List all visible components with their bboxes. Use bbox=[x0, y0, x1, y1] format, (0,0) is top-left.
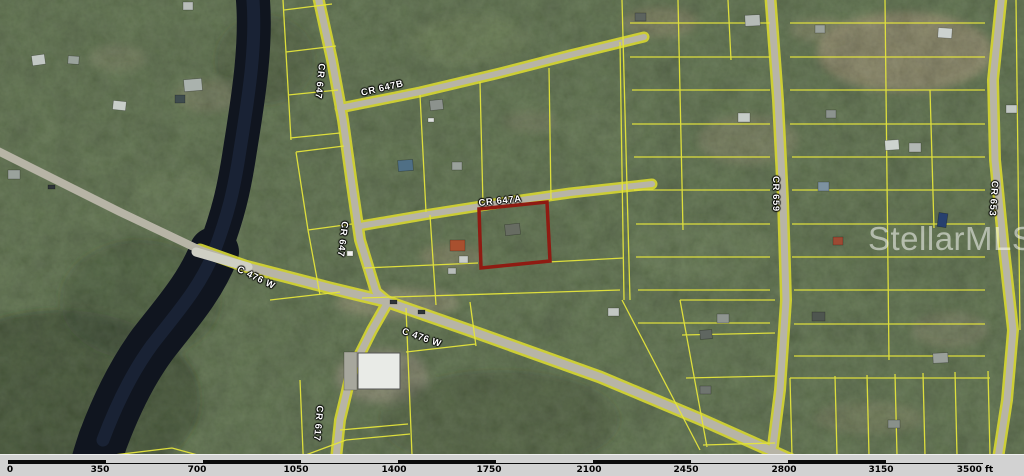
scale-tick-label: 350 bbox=[91, 465, 110, 475]
scale-bar: 0 350 700 1050 1400 1750 2100 2450 2800 … bbox=[0, 454, 1024, 476]
scale-tick-label: 1400 bbox=[381, 465, 406, 475]
scale-tick-label: 2450 bbox=[673, 465, 698, 475]
scale-ruler bbox=[8, 460, 983, 464]
scale-tick-label: 2100 bbox=[576, 465, 601, 475]
scale-tick-label: 2800 bbox=[771, 465, 796, 475]
scale-tick-label: 3500 ft bbox=[957, 465, 993, 475]
scale-tick-label: 1750 bbox=[476, 465, 501, 475]
aerial-parcel-map: CR 647 CR 647 CR 647B CR 647A CR 617 CR … bbox=[0, 0, 1024, 476]
scale-tick-label: 0 bbox=[7, 465, 13, 475]
scale-tick-label: 1050 bbox=[283, 465, 308, 475]
road-label-cr659: CR 659 bbox=[770, 176, 781, 212]
scale-tick-label: 700 bbox=[188, 465, 207, 475]
scale-tick-label: 3150 bbox=[868, 465, 893, 475]
stellar-mls-watermark: StellarMLS bbox=[868, 220, 1024, 258]
